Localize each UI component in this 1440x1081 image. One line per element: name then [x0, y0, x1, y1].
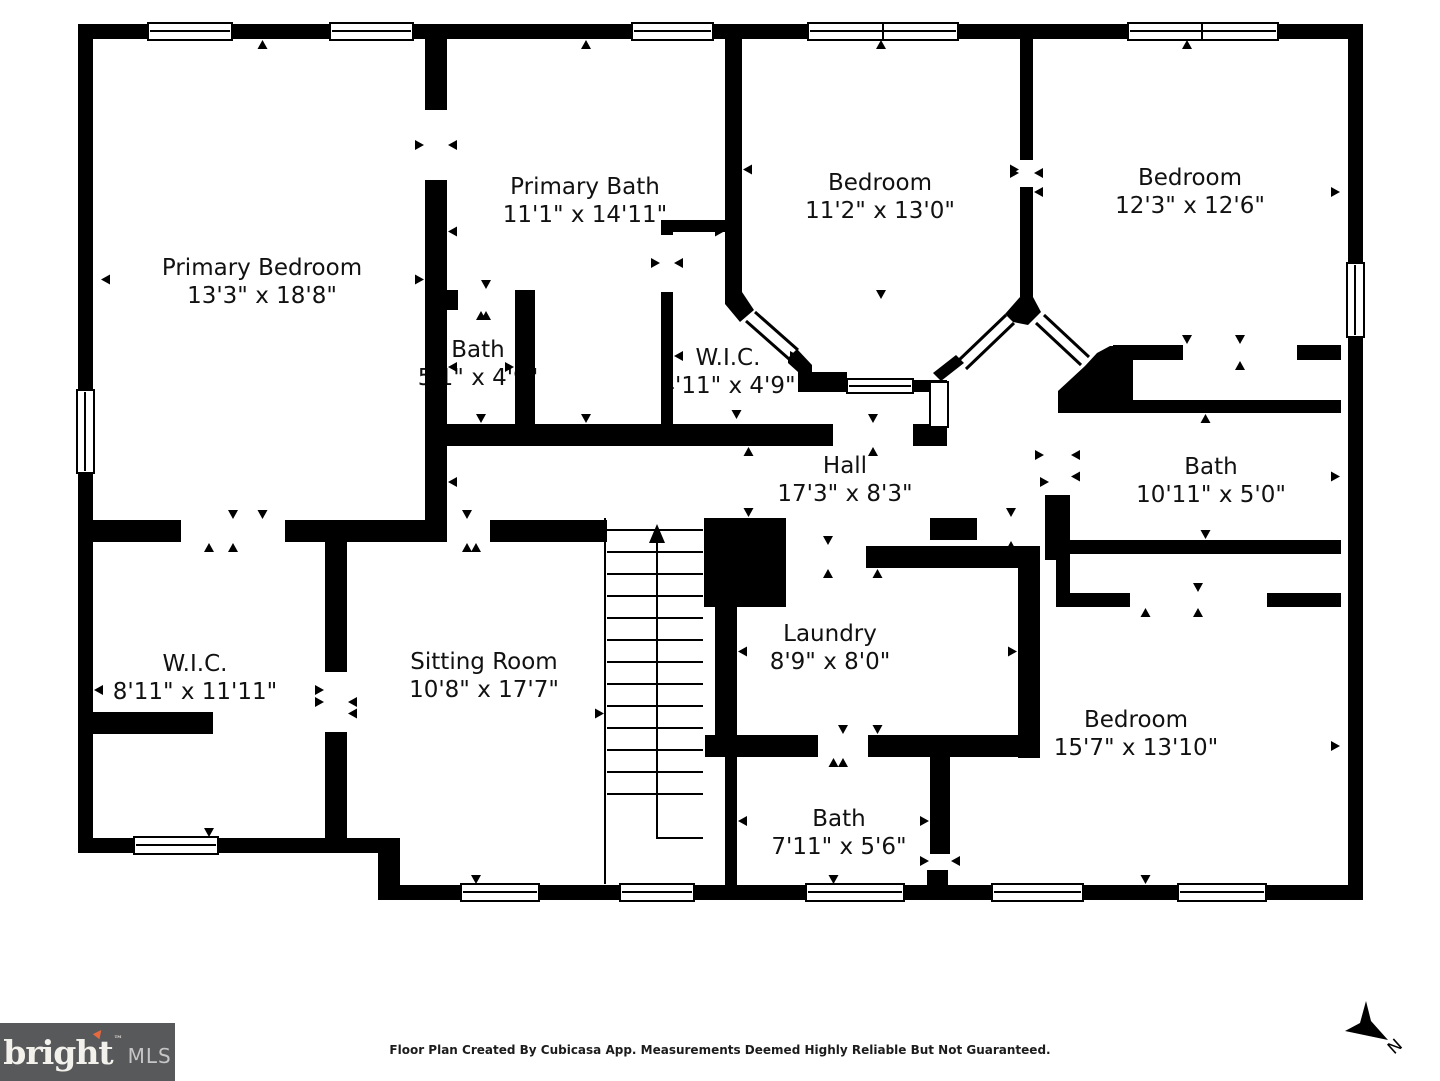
floor-plan-page: Primary Bedroom13'3" x 18'8" Primary Bat… — [0, 0, 1440, 1081]
floor-plan-drawing: N — [0, 0, 1440, 1081]
room-label-bedroom-top-right: Bedroom12'3" x 12'6" — [1115, 164, 1265, 220]
logo-suffix: MLS — [128, 1044, 172, 1068]
room-label-primary-bedroom: Primary Bedroom13'3" x 18'8" — [162, 254, 362, 310]
room-label-bedroom-bottom-right: Bedroom15'7" x 13'10" — [1054, 706, 1218, 762]
room-label-bedroom-top-middle: Bedroom11'2" x 13'0" — [805, 169, 955, 225]
room-label-sitting-room: Sitting Room10'8" x 17'7" — [409, 648, 559, 704]
room-label-bath-middle: Bath10'11" x 5'0" — [1136, 453, 1286, 509]
diagonal-doorways — [746, 312, 1089, 369]
room-label-hall: Hall17'3" x 8'3" — [777, 452, 912, 508]
room-label-primary-bath: Primary Bath11'1" x 14'11" — [503, 173, 667, 229]
staircase — [605, 518, 703, 884]
room-label-wic-large: W.I.C.8'11" x 11'11" — [113, 650, 277, 706]
footer-disclaimer: Floor Plan Created By Cubicasa App. Meas… — [0, 1043, 1440, 1057]
room-label-bath-bottom: Bath7'11" x 5'6" — [771, 805, 906, 861]
logo-brand: bright▲™ — [3, 1033, 121, 1072]
room-label-bath-small: Bath5'1" x 4'9" — [418, 336, 539, 392]
logo-trademark: ™ — [114, 1035, 122, 1045]
room-label-wic-small: W.I.C.4'11" x 4'9" — [660, 344, 795, 400]
brightmls-logo: bright▲™ MLS — [0, 1023, 175, 1081]
room-label-laundry: Laundry8'9" x 8'0" — [770, 620, 891, 676]
